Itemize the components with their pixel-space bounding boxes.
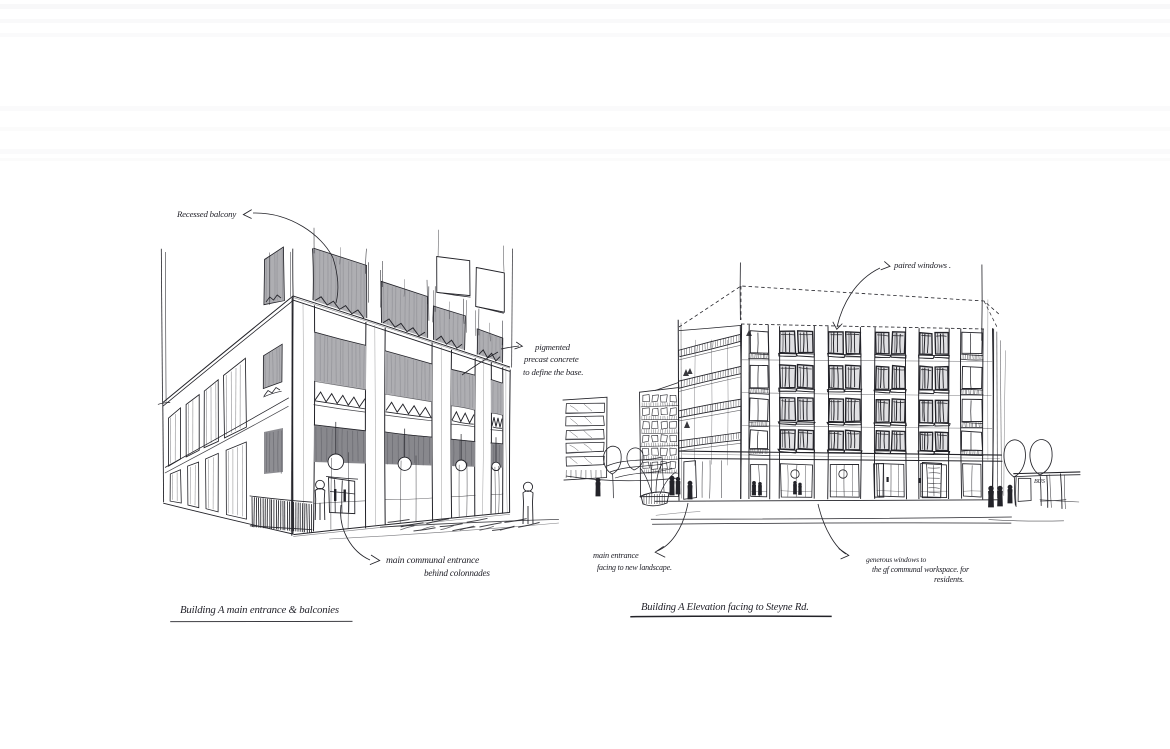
svg-text:behind colonnades: behind colonnades	[424, 568, 490, 578]
svg-text:BUS: BUS	[1034, 478, 1045, 485]
svg-text:precast concrete: precast concrete	[523, 354, 579, 364]
svg-text:residents.: residents.	[934, 575, 964, 584]
svg-text:the gf communal workspace. for: the gf communal workspace. for	[872, 565, 970, 574]
svg-text:main communal entrance: main communal entrance	[386, 555, 480, 566]
svg-text:Recessed balcony: Recessed balcony	[176, 209, 236, 219]
svg-text:to define the base.: to define the base.	[523, 367, 583, 377]
svg-text:generous windows to: generous windows to	[866, 555, 926, 564]
svg-text:main entrance: main entrance	[593, 551, 639, 560]
svg-text:facing to new landscape.: facing to new landscape.	[597, 563, 672, 572]
svg-text:paired windows .: paired windows .	[893, 260, 951, 270]
svg-text:Building A main entrance & b: Building A main entrance & balconies	[180, 604, 339, 616]
svg-text:pigmented: pigmented	[534, 342, 571, 352]
svg-text:Building A Elevation facing t: Building A Elevation facing to Steyne Rd…	[641, 602, 809, 613]
